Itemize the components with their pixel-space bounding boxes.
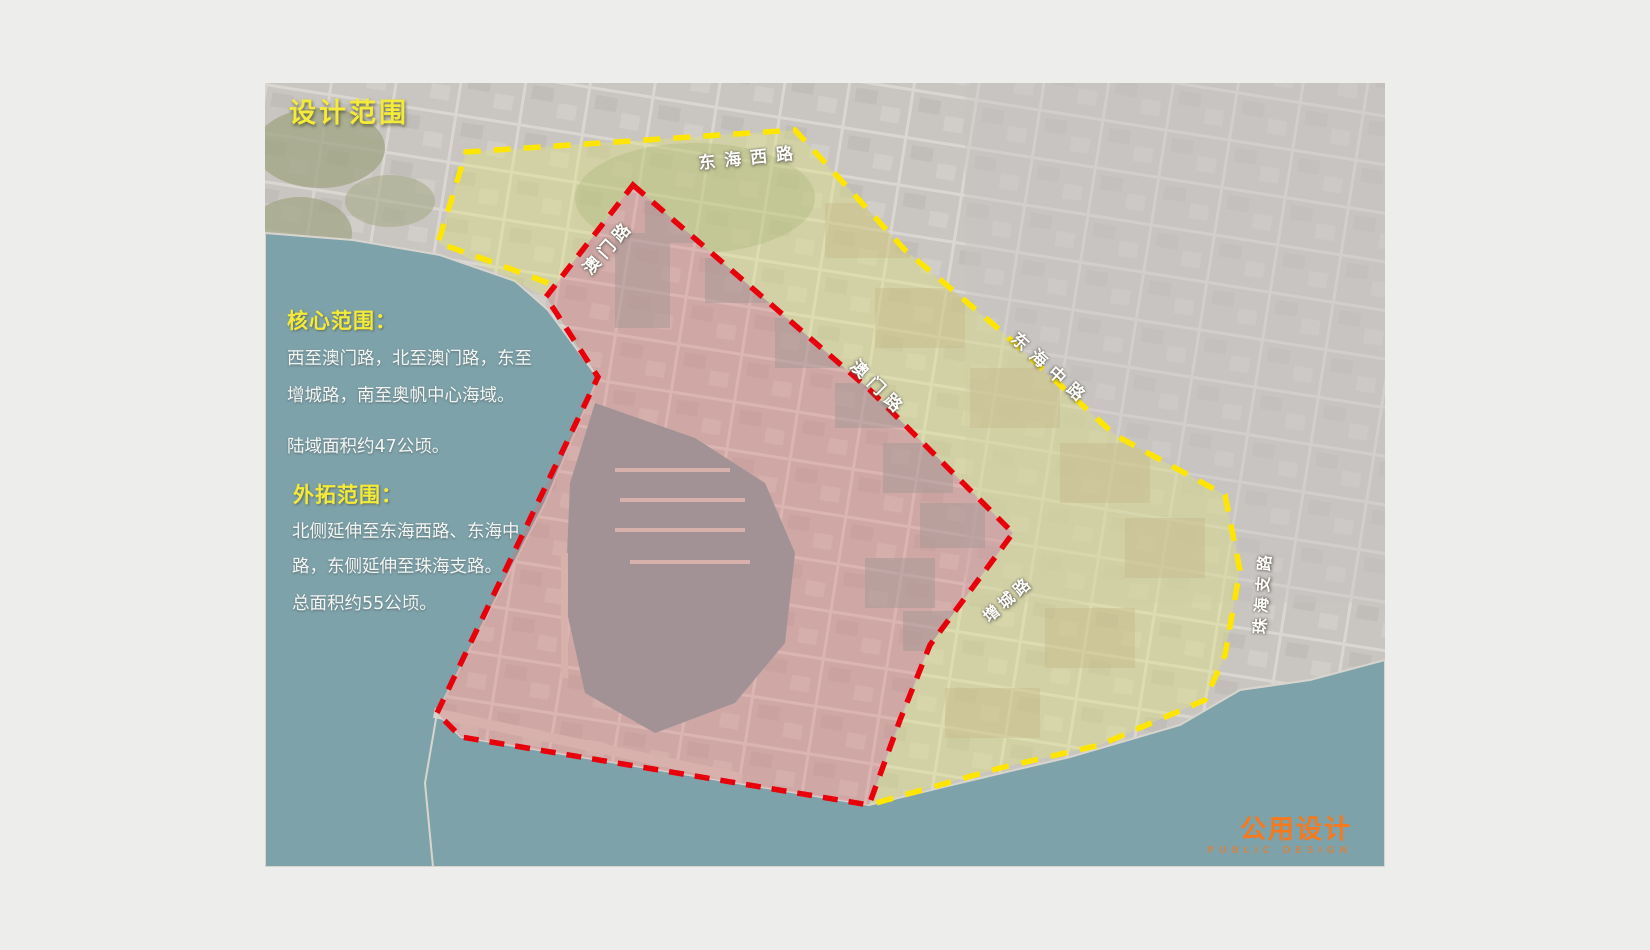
extended-scope-description: 北侧延伸至东海西路、东海中路，东侧延伸至珠海支路。	[292, 515, 532, 585]
map-canvas: 东海西路 澳门路 澳门路 东海中路 增城路 珠海支路 设计范围 核心范围： 西至…	[265, 83, 1385, 867]
core-scope-heading: 核心范围：	[287, 305, 397, 335]
page-title: 设计范围	[289, 91, 409, 130]
company-logo: 公用设计 PUBLIC DESIGN	[1207, 816, 1352, 857]
core-scope-area-value: 陆域面积约47公顷。	[287, 429, 547, 466]
satellite-map	[265, 83, 1385, 867]
logo-chinese-text: 公用设计	[1207, 816, 1352, 844]
logo-english-text: PUBLIC DESIGN	[1207, 844, 1352, 857]
slide-background: { "slide": { "title": "设计范围", "core": { …	[0, 0, 1650, 950]
extended-scope-area-value: 总面积约55公顷。	[292, 586, 532, 623]
extended-scope-heading: 外拓范围：	[293, 479, 403, 509]
core-scope-description: 西至澳门路，北至澳门路，东至增城路，南至奥帆中心海域。	[287, 341, 539, 415]
